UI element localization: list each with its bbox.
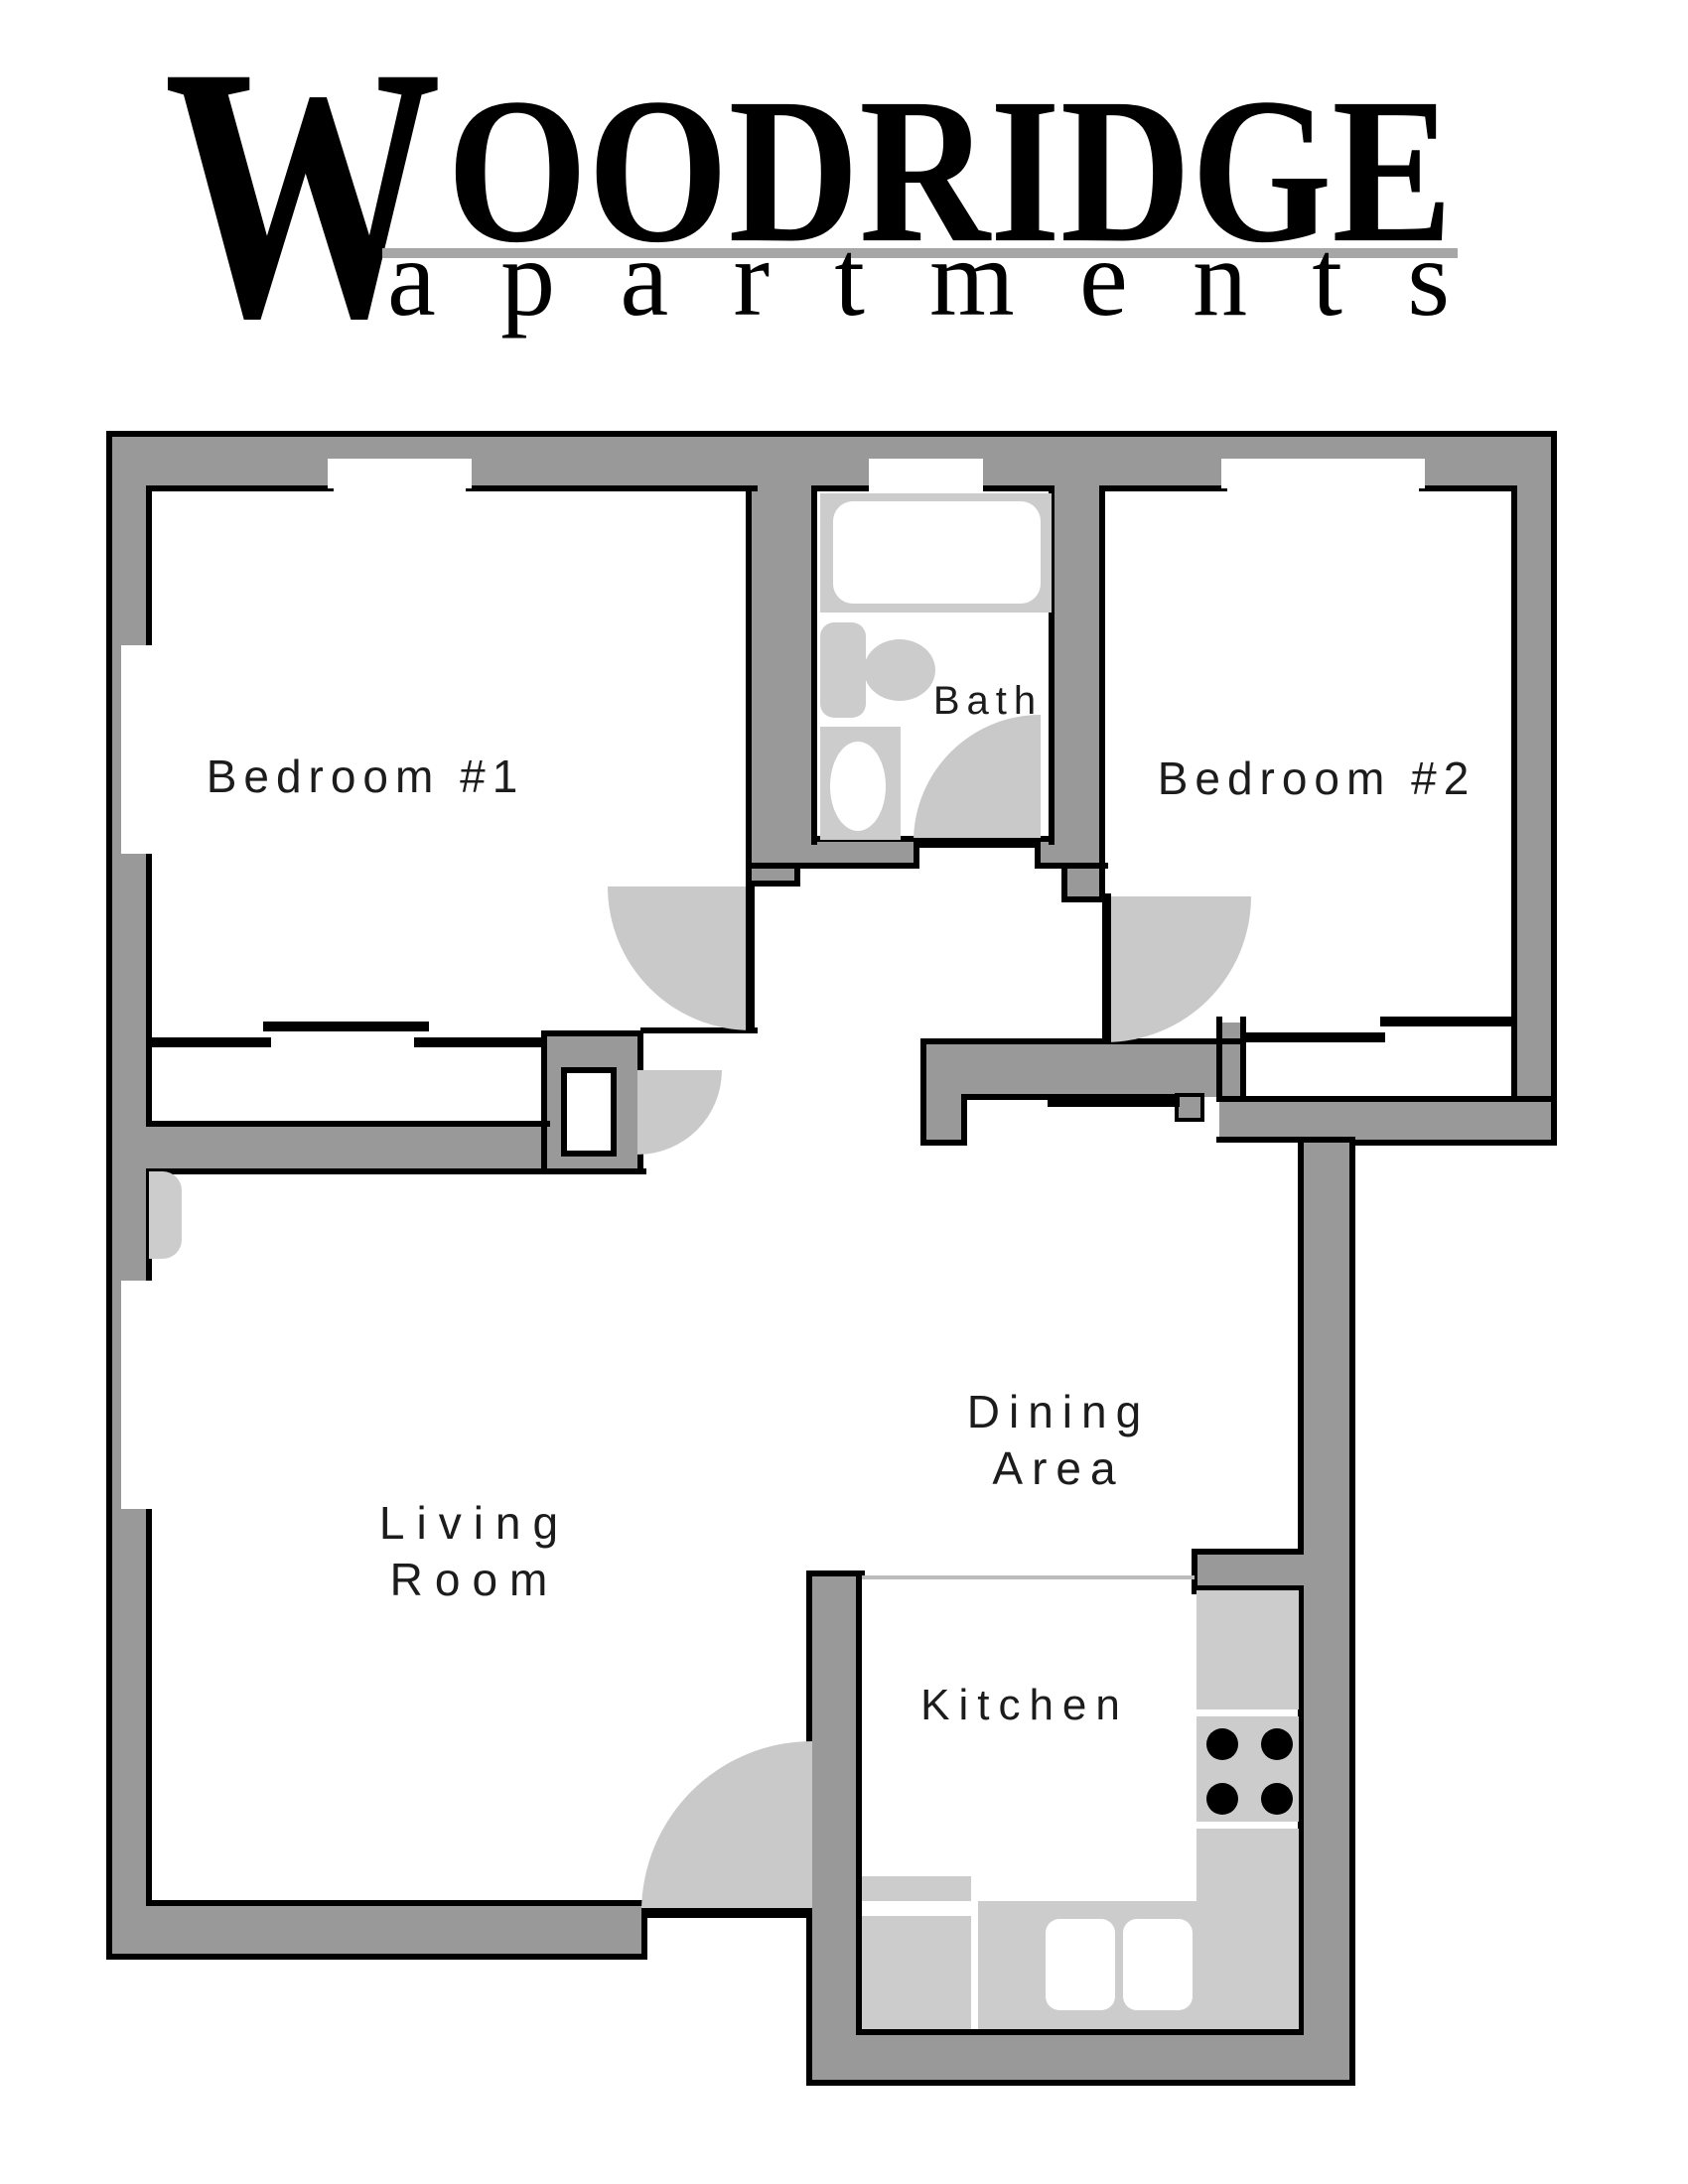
- wall-dining-top-leg: [923, 1097, 961, 1140]
- toilet-bowl: [864, 639, 935, 701]
- stove-burner: [1261, 1783, 1293, 1815]
- window-bedroom1-top: [328, 459, 472, 488]
- wall-dining-top: [923, 1044, 1219, 1097]
- entry-door: [641, 1908, 812, 1918]
- wall-living-top: [109, 1124, 544, 1171]
- wall-bath-right: [1055, 434, 1105, 869]
- stove-burner: [1206, 1728, 1238, 1760]
- wall-bedroom1-bath: [752, 434, 817, 869]
- label-bedroom1: Bedroom #1: [207, 751, 525, 802]
- living-radiator: [149, 1171, 182, 1259]
- kitchen-counter-right-bottom: [1196, 1829, 1299, 2029]
- bath-sink: [830, 742, 886, 831]
- dining-door: [1048, 1097, 1180, 1107]
- kitchen-counter-left-block: [862, 1916, 971, 2029]
- wall-living-bottom: [109, 1906, 641, 1954]
- kitchen-sink-right: [1123, 1919, 1193, 2010]
- bathtub: [833, 501, 1041, 604]
- logo: W OODRIDGE apartments: [164, 0, 1458, 393]
- wall-kitchen-left: [812, 1573, 859, 2032]
- label-kitchen: Kitchen: [920, 1681, 1129, 1729]
- hall-closet-recess: [564, 1070, 614, 1154]
- floorplan-canvas: W OODRIDGE apartments: [0, 0, 1688, 2184]
- hall-closet-door-arc: [637, 1070, 722, 1155]
- floorplan-page: W OODRIDGE apartments: [0, 0, 1688, 2184]
- label-bedroom2: Bedroom #2: [1158, 752, 1477, 804]
- bedroom1-door-arc: [608, 887, 752, 1030]
- dining-door-jamb: [1177, 1095, 1202, 1120]
- kitchen-counter-right-top: [1196, 1590, 1299, 1709]
- window-bedroom2-top: [1221, 459, 1425, 488]
- wall-below-closet2: [1219, 1102, 1554, 1140]
- label-bath: Bath: [933, 679, 1043, 723]
- kitchen-counter-left-bar: [862, 1876, 971, 1901]
- window-living-left: [121, 1281, 149, 1509]
- bedroom2-door: [1102, 893, 1111, 1042]
- label-living-line1: Living: [379, 1497, 570, 1549]
- kitchen-sink-left: [1046, 1919, 1115, 2010]
- label-dining-line2: Area: [992, 1442, 1124, 1494]
- wall-kitchen-bottom: [812, 2032, 1352, 2080]
- wall-dining-right: [1304, 1140, 1352, 2080]
- kitchen-pass-line: [862, 1575, 1195, 1579]
- wall-kitchen-lip: [1195, 1552, 1304, 1588]
- window-bedroom1-left: [121, 645, 149, 854]
- bedroom1-door: [746, 884, 755, 1030]
- label-dining-line1: Dining: [967, 1386, 1150, 1437]
- label-living-line2: Room: [390, 1554, 560, 1605]
- stove-burner: [1206, 1783, 1238, 1815]
- window-bath-top: [869, 459, 983, 488]
- bedroom2-door-arc: [1105, 896, 1251, 1042]
- toilet-tank: [820, 622, 866, 718]
- stove-burner: [1261, 1728, 1293, 1760]
- wall-closet2-left: [1219, 1023, 1243, 1102]
- wall-right: [1514, 434, 1554, 1140]
- door-arcs: [608, 715, 1251, 1912]
- bath-door: [914, 838, 1041, 848]
- entry-door-arc: [641, 1741, 812, 1912]
- bath-door-arc: [914, 715, 1041, 842]
